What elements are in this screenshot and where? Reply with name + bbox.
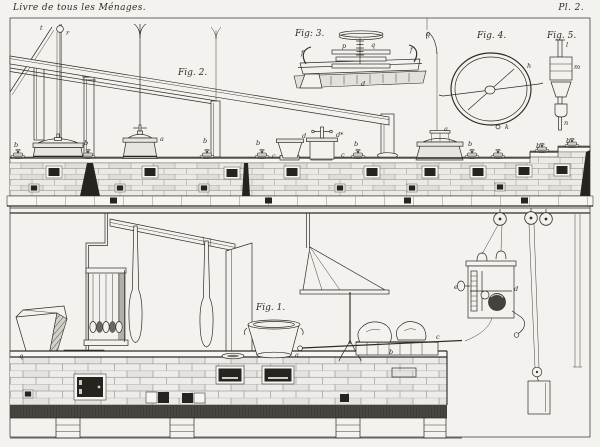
firebox-right: [262, 366, 294, 384]
callout-letter: a: [160, 135, 164, 143]
callout-letter: b: [566, 137, 570, 145]
range-hood: [300, 213, 389, 294]
callout-letter: a: [444, 125, 448, 133]
callout-letter: a: [295, 351, 299, 359]
callout-letter: c: [272, 152, 276, 160]
figure-label: Fig: 3.: [294, 29, 325, 39]
roasts: [358, 322, 426, 343]
spit-jack: [457, 251, 524, 341]
callout-letter: r: [66, 29, 70, 37]
callout-letter: q: [426, 30, 430, 38]
callout-letter: b: [203, 137, 207, 145]
callout-letter: m: [574, 63, 580, 71]
callout-letter: l: [566, 41, 568, 49]
callout-letter: d: [302, 132, 306, 140]
callout-letter: b: [256, 139, 260, 147]
stove-pots: [11, 125, 579, 160]
figure-label: Fig. 2.: [177, 68, 207, 78]
top-panel-stove: [7, 18, 593, 206]
figure-label: Fig. 4.: [476, 31, 506, 41]
counter-legs: [56, 418, 446, 438]
callout-letter: q: [19, 352, 23, 360]
callout-letter: k: [505, 123, 509, 131]
callout-letter: b: [536, 142, 540, 150]
callout-letter: c: [341, 151, 345, 159]
callout-letter: d: [361, 80, 365, 88]
callout-letter: d: [514, 285, 518, 293]
figure-label: Fig. 5.: [546, 31, 576, 41]
engraving-plate: Livre de tous les Ménages. Pl. 2.: [0, 0, 600, 447]
fig3-press-apparatus: [294, 31, 426, 88]
callout-letter: h: [527, 62, 531, 70]
spoon-rack: [84, 268, 128, 346]
callout-letter: b: [14, 141, 18, 149]
firebox-left: [216, 366, 244, 384]
covered-kettle-right: [416, 131, 463, 161]
flat-dish-center: [227, 355, 239, 357]
callout-letter: t: [40, 24, 43, 32]
callout-letter: b: [354, 140, 358, 148]
fig5-fitting: [550, 40, 572, 130]
callout-letter: d*: [336, 131, 344, 139]
callout-letter: n: [564, 119, 568, 127]
callout-letter: p: [342, 42, 347, 50]
lidded-pot-dstar: [307, 127, 338, 160]
figure-label: Fig. 1.: [255, 303, 285, 313]
brick-counter: [10, 351, 462, 438]
callout-letter: q: [371, 41, 375, 49]
engraving-drawing: Fig. 2.Fig: 3.Fig. 4.Fig. 5.Fig. 1.trqbb…: [0, 0, 600, 447]
bottom-panel-kitchen: [10, 208, 582, 438]
callout-letter: c: [436, 333, 440, 341]
oven-door: [74, 374, 106, 400]
callout-letter: b: [84, 139, 88, 147]
callout-letter: b: [468, 140, 472, 148]
callout-letter: e: [454, 283, 458, 291]
covered-kettle-mid: [123, 125, 157, 159]
drive-weight: [528, 381, 550, 414]
callout-letter: b: [389, 348, 393, 356]
